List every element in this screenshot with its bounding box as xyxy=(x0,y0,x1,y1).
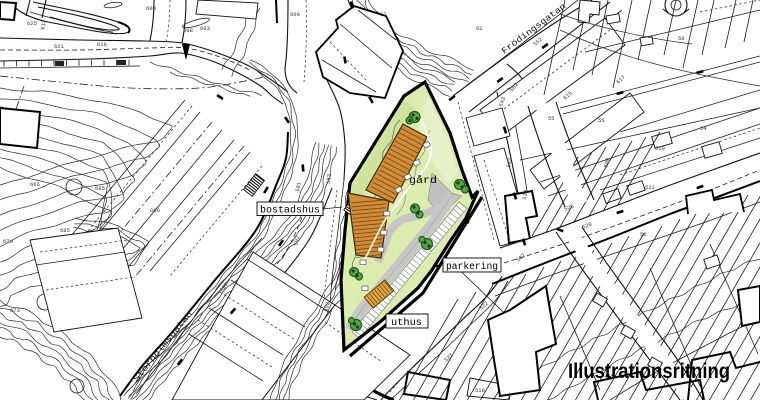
svg-text:616: 616 xyxy=(97,41,107,48)
svg-text:600: 600 xyxy=(146,5,156,12)
svg-text:56: 56 xyxy=(678,35,685,42)
svg-text:685: 685 xyxy=(95,185,105,192)
svg-text:625: 625 xyxy=(27,20,37,27)
svg-text:608: 608 xyxy=(183,27,193,34)
svg-text:610: 610 xyxy=(655,145,665,152)
svg-text:518: 518 xyxy=(475,387,485,394)
svg-text:parkering: parkering xyxy=(446,261,498,273)
svg-text:666: 666 xyxy=(30,181,40,188)
svg-text:676: 676 xyxy=(3,238,13,245)
svg-text:660: 660 xyxy=(150,207,160,214)
svg-text:uthus: uthus xyxy=(391,317,422,329)
svg-text:55: 55 xyxy=(598,117,605,124)
svg-text:685: 685 xyxy=(60,227,70,234)
svg-text:gård: gård xyxy=(409,174,437,187)
svg-text:521: 521 xyxy=(645,184,656,191)
svg-text:621: 621 xyxy=(54,43,65,50)
svg-text:bostadshus: bostadshus xyxy=(260,205,320,217)
svg-text:673: 673 xyxy=(10,307,20,314)
svg-text:54: 54 xyxy=(700,125,707,132)
svg-text:600: 600 xyxy=(290,11,300,18)
svg-text:603: 603 xyxy=(200,25,210,32)
svg-text:583: 583 xyxy=(325,174,333,184)
svg-text:62: 62 xyxy=(476,25,483,32)
svg-text:62: 62 xyxy=(380,11,387,18)
svg-text:Illustrationsritning: Illustrationsritning xyxy=(568,360,730,383)
svg-text:55: 55 xyxy=(548,115,555,122)
svg-text:56: 56 xyxy=(640,231,647,238)
